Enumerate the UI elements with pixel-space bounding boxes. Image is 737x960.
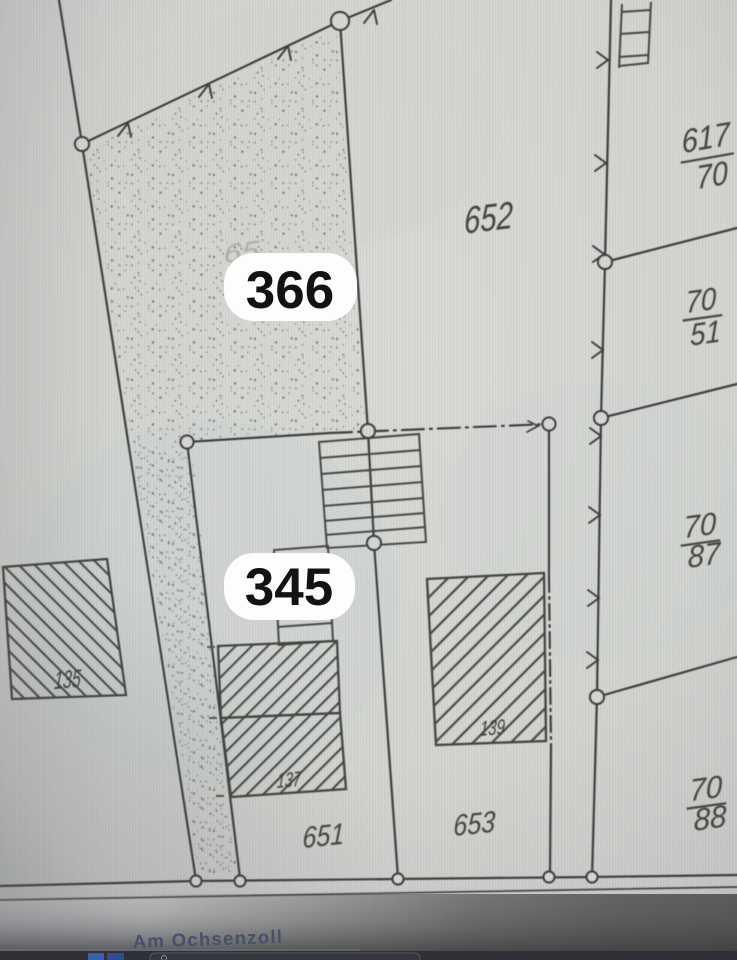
svg-text:366: 366 [246,261,334,320]
svg-text:345: 345 [245,558,333,617]
